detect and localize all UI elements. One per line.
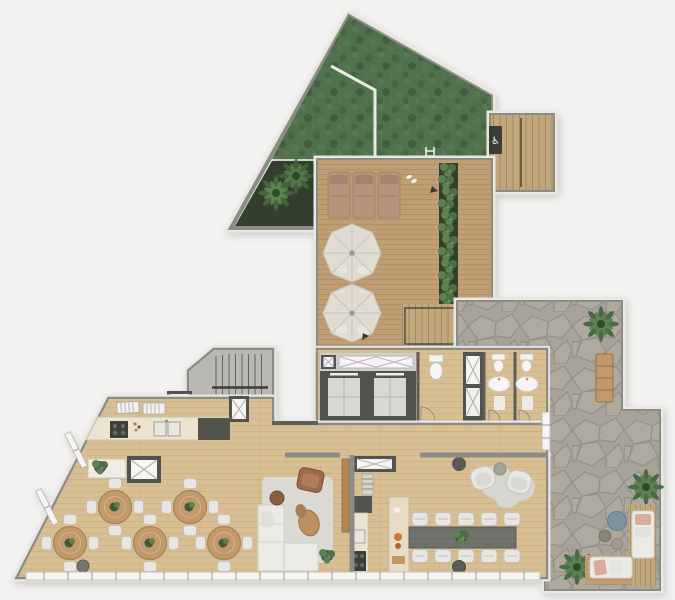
vent-grille [117,401,140,413]
patio-bench [596,354,613,402]
shaft-x-dining [127,456,161,483]
shaft-x-kitchen [229,396,249,422]
window-mullions [44,572,524,580]
floor-plan-canvas: ♿ [0,0,675,600]
side-table [270,491,284,505]
toilet-bowl [522,360,532,372]
outdoor-sofa-vertical [632,511,654,558]
faucet [165,420,168,423]
armchair [296,467,325,494]
kitchen-sink [154,422,166,436]
patio-pouf [612,539,623,550]
refrigerator [352,496,372,513]
shaft-x-galley [353,456,396,472]
bath-mat [494,396,505,410]
nook-side-table [494,463,506,475]
window-band-south [26,572,540,580]
food-bowl [394,533,402,541]
patio-round-table [608,512,627,531]
elevator-lobby [320,353,416,371]
kitchen-dark-counter [198,418,230,440]
toilet-bowl [430,363,443,380]
cutting-board [392,556,405,564]
service-shafts [463,352,483,423]
patio-pouf [599,530,611,542]
toilet-cistern [492,354,505,360]
stair-handrail [520,118,522,187]
waste-bin [77,560,89,572]
bath-mat [522,396,533,410]
palm-plant-small [278,158,314,194]
floor-plan-svg: ♿ [0,0,675,600]
parasol-table [323,284,381,342]
elevators [320,371,416,423]
galley-sink [354,530,365,543]
cooktop [110,421,128,438]
deck-stairs-down [402,304,458,351]
lobby-window [339,356,413,368]
patio-plant [583,306,619,342]
stool [453,561,466,574]
wall-planter [452,457,466,471]
toilet-cistern [429,355,443,362]
kitchen-sink [168,422,180,436]
toilet-bowl [494,360,504,372]
window-east [542,412,550,450]
wheelchair-accessible-icon: ♿ [491,136,500,147]
outdoor-sofa-horizontal [590,557,632,578]
parasol-table [323,224,381,282]
patio-plant [628,469,664,505]
sun-lounger [378,172,400,218]
sun-lounger [353,172,375,218]
zone-core-block [318,350,546,425]
dish [394,507,400,513]
food-bowl [395,543,401,549]
open-door-leaf [342,459,349,532]
toilet-cistern [520,354,533,360]
zone-exterior-stair: ♿ [489,115,553,190]
vent-grille [143,403,165,414]
sun-lounger [328,172,350,218]
